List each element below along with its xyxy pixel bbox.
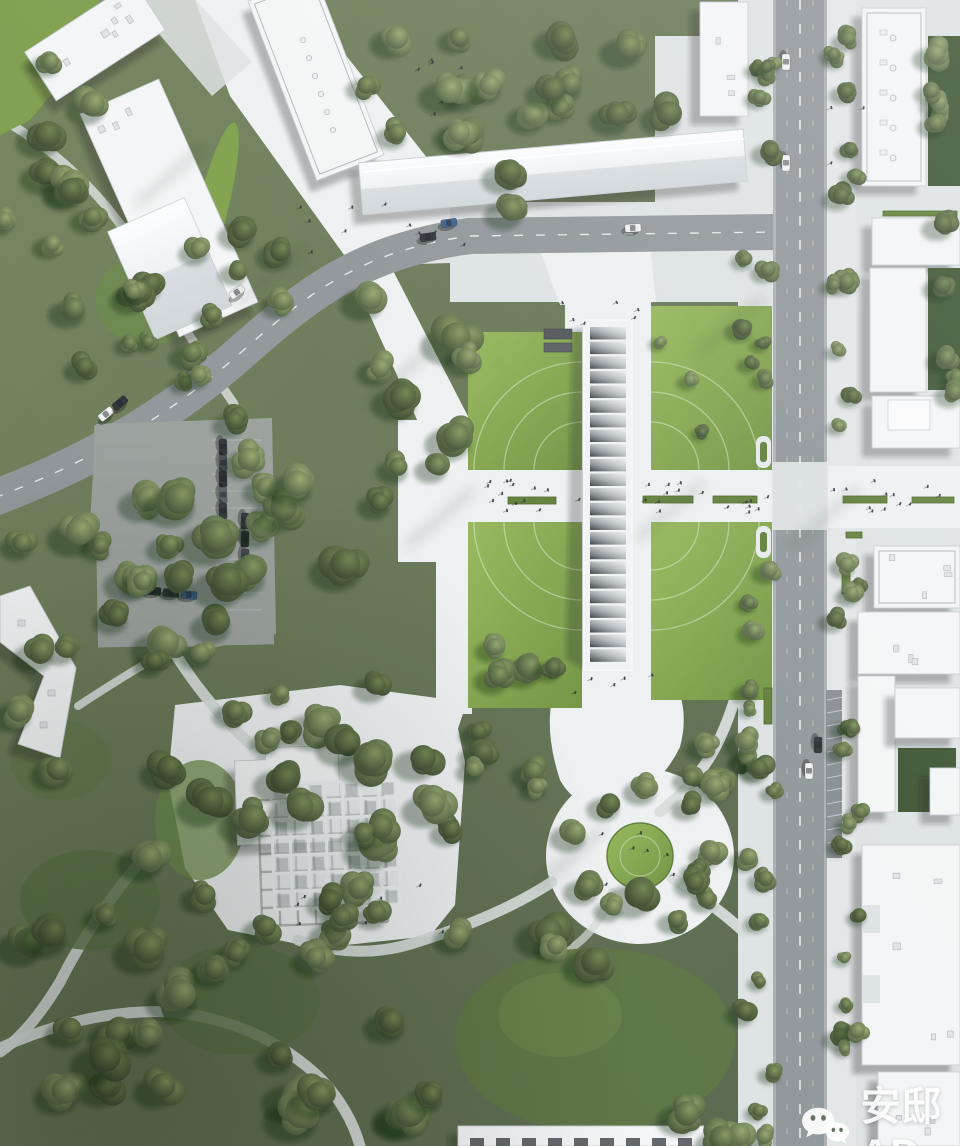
- aerial-render-stage: 安邸AD: [0, 0, 960, 1146]
- watermark-text: 安邸AD: [861, 1074, 960, 1146]
- aerial-scene-svg: [0, 0, 960, 1146]
- watermark: 安邸AD: [800, 1074, 960, 1146]
- wechat-icon: [800, 1097, 851, 1146]
